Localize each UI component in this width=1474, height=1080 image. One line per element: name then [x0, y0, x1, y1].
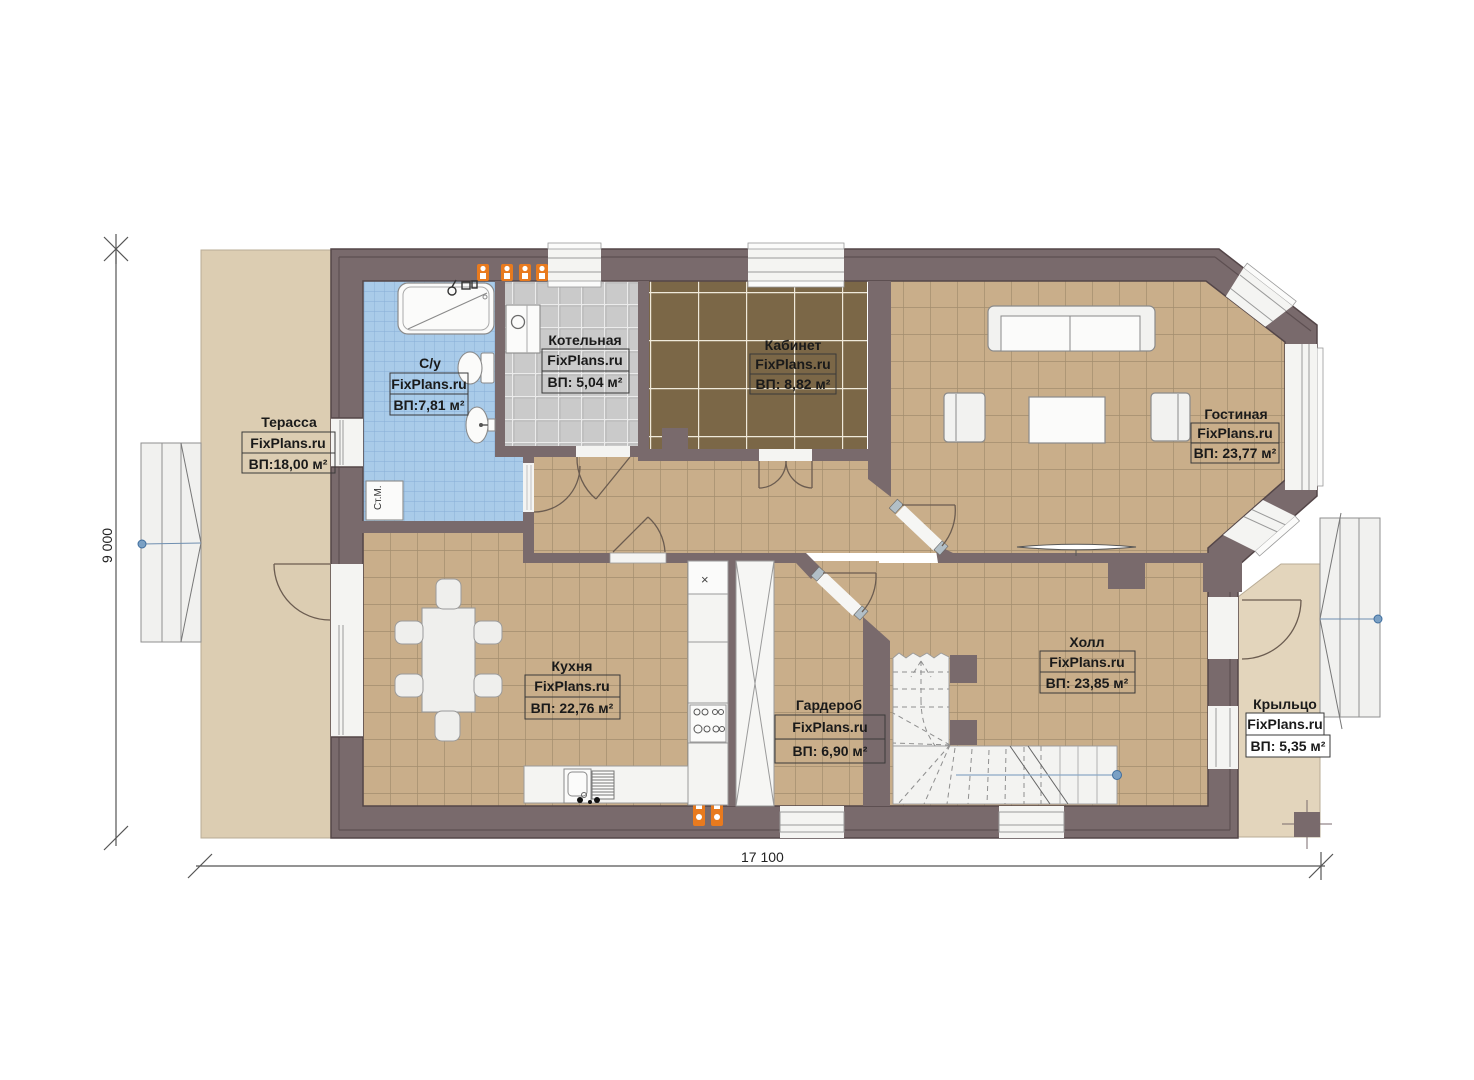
svg-text:Кабинет: Кабинет: [765, 337, 822, 353]
svg-text:ВП: 23,85 м²: ВП: 23,85 м²: [1046, 675, 1129, 691]
svg-text:ВП:18,00 м²: ВП:18,00 м²: [249, 456, 328, 472]
svg-text:Гостиная: Гостиная: [1204, 406, 1267, 422]
svg-text:Ст.М.: Ст.М.: [373, 485, 384, 510]
svg-text:FixPlans.ru: FixPlans.ru: [1247, 716, 1322, 732]
svg-text:×: ×: [701, 572, 709, 587]
svg-text:С/у: С/у: [419, 355, 441, 371]
svg-text:FixPlans.ru: FixPlans.ru: [250, 435, 325, 451]
svg-text:FixPlans.ru: FixPlans.ru: [391, 376, 466, 392]
svg-text:ВП: 22,76 м²: ВП: 22,76 м²: [531, 700, 614, 716]
svg-text:FixPlans.ru: FixPlans.ru: [534, 678, 609, 694]
svg-text:FixPlans.ru: FixPlans.ru: [547, 352, 622, 368]
svg-text:Гардероб: Гардероб: [796, 697, 863, 713]
svg-text:Терасса: Терасса: [261, 414, 317, 430]
svg-text:ВП:7,81 м²: ВП:7,81 м²: [394, 397, 465, 413]
svg-text:9 000: 9 000: [99, 528, 115, 563]
svg-text:Кухня: Кухня: [552, 658, 593, 674]
svg-text:ВП: 5,35 м²: ВП: 5,35 м²: [1251, 738, 1326, 754]
svg-text:Котельная: Котельная: [548, 332, 621, 348]
svg-text:FixPlans.ru: FixPlans.ru: [1049, 654, 1124, 670]
svg-text:FixPlans.ru: FixPlans.ru: [755, 356, 830, 372]
svg-text:FixPlans.ru: FixPlans.ru: [792, 719, 867, 735]
svg-text:ВП: 23,77 м²: ВП: 23,77 м²: [1194, 445, 1277, 461]
svg-text:17 100: 17 100: [741, 849, 784, 865]
svg-text:ВП: 5,04 м²: ВП: 5,04 м²: [548, 374, 623, 390]
svg-text:Крыльцо: Крыльцо: [1253, 696, 1317, 712]
svg-text:FixPlans.ru: FixPlans.ru: [1197, 425, 1272, 441]
svg-text:ВП: 8,82 м²: ВП: 8,82 м²: [756, 376, 831, 392]
svg-text:Холл: Холл: [1069, 634, 1104, 650]
svg-text:ВП: 6,90 м²: ВП: 6,90 м²: [793, 743, 868, 759]
